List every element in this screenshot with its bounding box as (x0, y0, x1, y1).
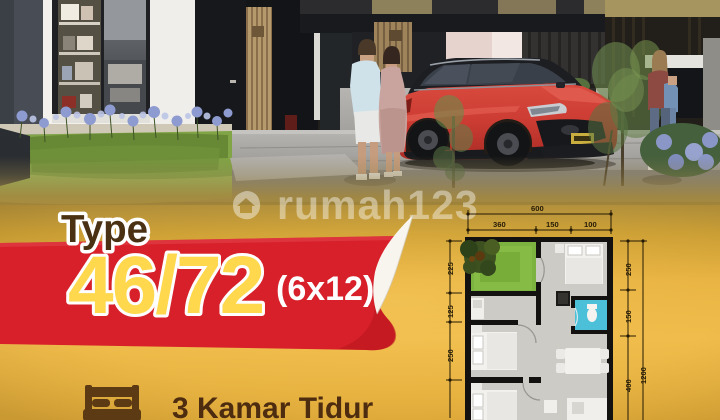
svg-text:rumah123: rumah123 (277, 182, 479, 228)
svg-text:100: 100 (584, 220, 597, 229)
svg-text:1200: 1200 (639, 367, 648, 384)
svg-text:360: 360 (493, 220, 506, 229)
svg-text:600: 600 (531, 204, 544, 213)
svg-text:250: 250 (446, 349, 455, 362)
svg-text:3 Kamar Tidur: 3 Kamar Tidur (172, 392, 374, 420)
svg-text:150: 150 (624, 310, 633, 323)
svg-text:150: 150 (546, 220, 559, 229)
svg-text:400: 400 (624, 379, 633, 392)
svg-text:250: 250 (624, 263, 633, 276)
svg-text:46/72: 46/72 (68, 240, 263, 331)
svg-text:125: 125 (446, 305, 455, 318)
svg-text:(6x12): (6x12) (276, 270, 374, 308)
svg-text:225: 225 (446, 262, 455, 275)
